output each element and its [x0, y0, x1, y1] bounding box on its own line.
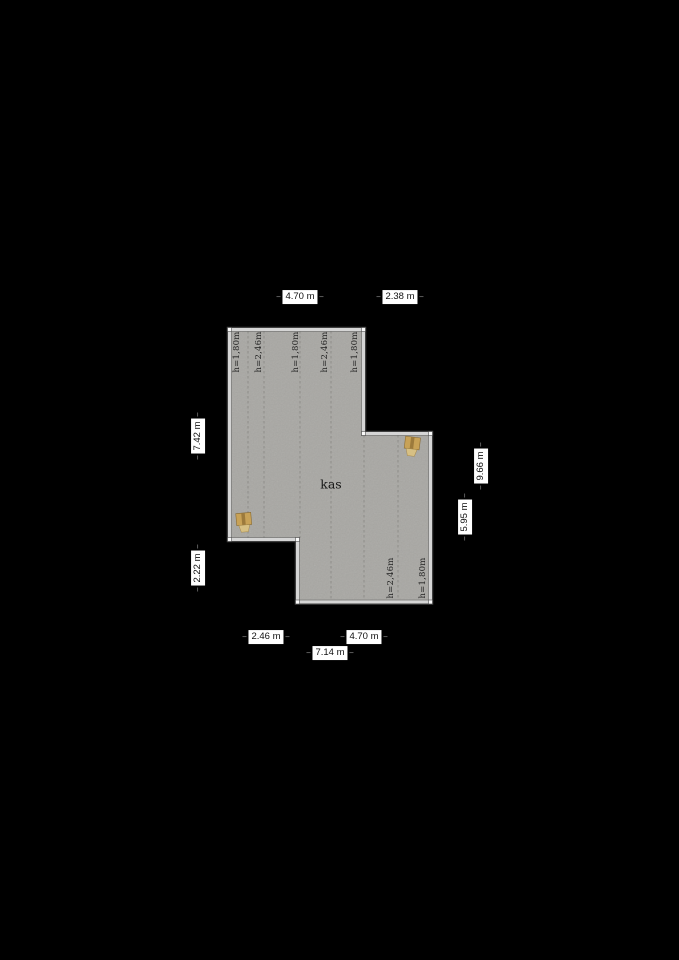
- dimension-tick: [384, 637, 388, 638]
- dimension-label-bottom-right: 4.70 m: [340, 630, 387, 644]
- dimension-tick: [242, 637, 246, 638]
- dimension-value: 4.70 m: [346, 630, 381, 644]
- dimension-tick: [350, 653, 354, 654]
- height-label: h=2,46m: [320, 332, 330, 373]
- corner-handle: [228, 538, 232, 542]
- corner-handle: [362, 328, 366, 332]
- dimension-tick: [465, 537, 466, 541]
- dimension-tick: [320, 297, 324, 298]
- dimension-tick: [481, 486, 482, 490]
- height-label: h=1,80m: [232, 332, 242, 373]
- dimension-label-bottom-left: 2.46 m: [242, 630, 289, 644]
- height-label: h=1,80m: [418, 558, 428, 599]
- dimension-label-right-lower: 5.95 m: [458, 493, 472, 540]
- dimension-tick: [340, 637, 344, 638]
- dimension-tick: [376, 297, 380, 298]
- dimension-value: 2.46 m: [248, 630, 283, 644]
- dimension-tick: [481, 442, 482, 446]
- corner-handle: [296, 538, 300, 542]
- dimension-tick: [420, 297, 424, 298]
- dimension-label-top-right: 2.38 m: [376, 290, 423, 304]
- corner-handle: [296, 600, 300, 604]
- dimension-label-right-total: 9.66 m: [474, 442, 488, 489]
- corner-handle: [429, 432, 433, 436]
- height-label: h=1,80m: [350, 332, 360, 373]
- dimension-value: 7.14 m: [312, 646, 347, 660]
- dimension-tick: [286, 637, 290, 638]
- dimension-tick: [276, 297, 280, 298]
- dimension-tick: [198, 412, 199, 416]
- dimension-tick: [198, 544, 199, 548]
- dimension-tick: [198, 456, 199, 460]
- dimension-label-left-lower: 2.22 m: [191, 544, 205, 591]
- dimension-tick: [465, 493, 466, 497]
- dimension-value: 4.70 m: [282, 290, 317, 304]
- dimension-value: 9.66 m: [474, 448, 488, 483]
- dimension-label-bottom-total: 7.14 m: [306, 646, 353, 660]
- corner-handle: [362, 432, 366, 436]
- floorplan-canvas: kas h=1,80m h=2,46m h=1,80m h=2,46m h=1,…: [0, 0, 679, 960]
- room-name-label: kas: [320, 477, 341, 492]
- corner-handle: [429, 600, 433, 604]
- corner-handle: [228, 328, 232, 332]
- dimension-value: 2.38 m: [382, 290, 417, 304]
- height-label: h=1,80m: [291, 332, 301, 373]
- dimension-label-left-upper: 7.42 m: [191, 412, 205, 459]
- dimension-tick: [198, 588, 199, 592]
- dimension-value: 5.95 m: [458, 499, 472, 534]
- dimension-value: 2.22 m: [191, 550, 205, 585]
- dimension-label-top-main: 4.70 m: [276, 290, 323, 304]
- dimension-tick: [306, 653, 310, 654]
- height-label: h=2,46m: [254, 332, 264, 373]
- dimension-value: 7.42 m: [191, 418, 205, 453]
- height-label: h=2,46m: [386, 558, 396, 599]
